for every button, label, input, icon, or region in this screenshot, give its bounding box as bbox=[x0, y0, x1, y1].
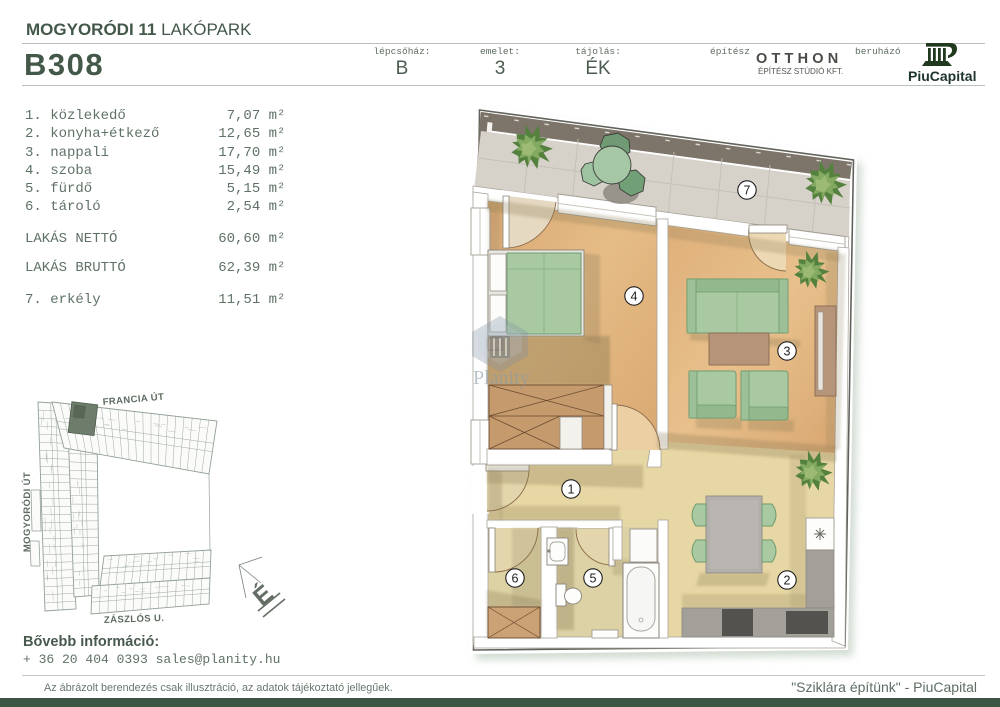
svg-text:FRANCIA ÚT: FRANCIA ÚT bbox=[102, 391, 165, 408]
svg-text:6: 6 bbox=[512, 572, 519, 586]
svg-text:1: 1 bbox=[568, 483, 575, 497]
svg-text:ZÁSZLÓS U.: ZÁSZLÓS U. bbox=[104, 612, 165, 626]
svg-text:5: 5 bbox=[590, 572, 597, 586]
svg-text:4: 4 bbox=[631, 290, 638, 304]
svg-text:2: 2 bbox=[784, 574, 791, 588]
svg-text:3: 3 bbox=[784, 345, 791, 359]
svg-text:Planity: Planity bbox=[473, 367, 530, 389]
svg-text:MOGYORÓDI ÚT: MOGYORÓDI ÚT bbox=[21, 472, 33, 552]
svg-text:7: 7 bbox=[744, 184, 751, 198]
